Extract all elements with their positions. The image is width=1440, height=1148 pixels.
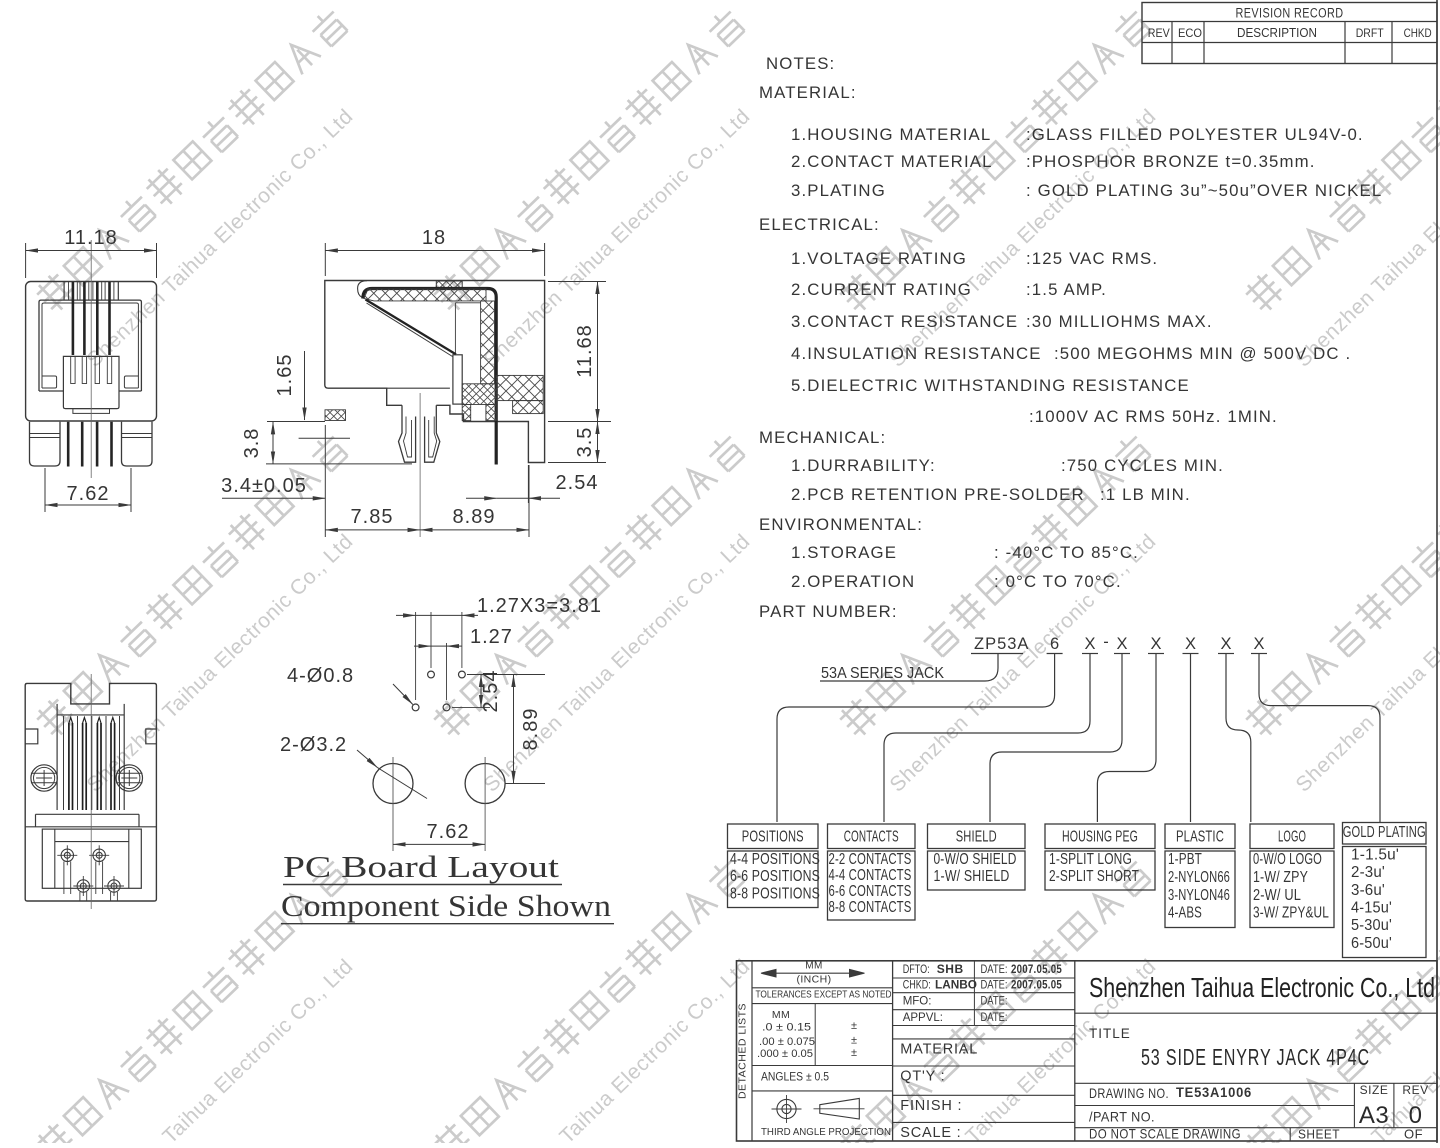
svg-text:: 0°C TO 70°C.: : 0°C TO 70°C. [994, 572, 1122, 591]
svg-text:1-W/ SHIELD: 1-W/ SHIELD [934, 868, 1010, 885]
svg-text:2-NYLON66: 2-NYLON66 [1168, 869, 1230, 886]
svg-text:X: X [1253, 635, 1264, 653]
svg-text:TE53A1006: TE53A1006 [1176, 1085, 1252, 1100]
svg-text:3.5: 3.5 [574, 427, 596, 458]
svg-text:MM: MM [805, 961, 822, 972]
svg-text:6-6 CONTACTS: 6-6 CONTACTS [829, 883, 912, 900]
svg-text:3.PLATING: 3.PLATING [791, 181, 886, 200]
svg-text:X: X [1150, 635, 1161, 653]
svg-text:2-W/ UL: 2-W/ UL [1253, 887, 1301, 904]
svg-text:1.STORAGE: 1.STORAGE [791, 543, 897, 562]
svg-text:REVISION RECORD: REVISION RECORD [1236, 6, 1344, 21]
svg-text:.00 ± 0.075: .00 ± 0.075 [759, 1036, 815, 1048]
svg-text:DO NOT SCALE DRAWING: DO NOT SCALE DRAWING [1089, 1126, 1241, 1142]
svg-text:CONTACTS: CONTACTS [844, 829, 899, 846]
svg-text:DATE:: DATE: [981, 1012, 1008, 1024]
svg-text:.000 ± 0.05: .000 ± 0.05 [757, 1048, 813, 1060]
svg-text:MFO:: MFO: [903, 996, 932, 1008]
svg-text:3-6u': 3-6u' [1351, 882, 1385, 899]
svg-text:TOLERANCES EXCEPT AS NOTED: TOLERANCES EXCEPT AS NOTED [756, 990, 892, 1001]
svg-text:NOTES:: NOTES: [766, 54, 835, 73]
svg-text:GOLD PLATING: GOLD PLATING [1343, 824, 1426, 841]
svg-text:2.OPERATION: 2.OPERATION [791, 572, 915, 591]
svg-text::PHOSPHOR BRONZE t=0.35mm.: :PHOSPHOR BRONZE t=0.35mm. [1026, 152, 1316, 171]
svg-text:REV: REV [1148, 26, 1170, 40]
svg-text:2007.05.05: 2007.05.05 [1011, 962, 1062, 976]
svg-text:6: 6 [1050, 635, 1059, 653]
svg-text:THIRD ANGLE PROJECTION: THIRD ANGLE PROJECTION [761, 1127, 891, 1138]
svg-text:0-W/O LOGO: 0-W/O LOGO [1253, 851, 1322, 868]
svg-text:TITLE: TITLE [1089, 1026, 1131, 1041]
svg-text:6-6 POSITIONS: 6-6 POSITIONS [730, 868, 820, 885]
svg-text:OF: OF [1404, 1127, 1423, 1142]
svg-text::30 MILLIOHMS MAX.: :30 MILLIOHMS MAX. [1026, 312, 1213, 331]
svg-text:1-1.5u': 1-1.5u' [1351, 847, 1399, 864]
svg-text:3-W/ ZPY&UL: 3-W/ ZPY&UL [1253, 905, 1329, 922]
svg-text:POSITIONS: POSITIONS [742, 829, 804, 846]
svg-text:(INCH): (INCH) [796, 974, 831, 986]
svg-text:1.27: 1.27 [470, 626, 513, 648]
svg-text:/PART NO.: /PART NO. [1089, 1109, 1155, 1125]
svg-text:4-4 POSITIONS: 4-4 POSITIONS [730, 851, 820, 868]
svg-text:SHB: SHB [937, 962, 964, 976]
svg-text:8.89: 8.89 [453, 506, 496, 528]
svg-text:3-NYLON46: 3-NYLON46 [1168, 887, 1230, 904]
svg-text:ECO: ECO [1178, 26, 1202, 40]
svg-text:ENVIRONMENTAL:: ENVIRONMENTAL: [759, 515, 923, 534]
svg-text:7.85: 7.85 [351, 506, 394, 528]
svg-text:1-SPLIT LONG: 1-SPLIT LONG [1049, 851, 1132, 868]
svg-text:5.DIELECTRIC WITHSTANDING RE: 5.DIELECTRIC WITHSTANDING RESISTANCE [791, 376, 1190, 395]
svg-text:LANBO: LANBO [935, 978, 977, 992]
svg-text:X: X [1084, 635, 1095, 653]
svg-text:3.4±0.05: 3.4±0.05 [221, 475, 307, 497]
svg-text:SHEET: SHEET [1298, 1127, 1340, 1142]
svg-text:DESCRIPTION: DESCRIPTION [1237, 26, 1317, 40]
svg-text:.0 ± 0.15: .0 ± 0.15 [762, 1021, 811, 1033]
svg-text:A3: A3 [1359, 1102, 1389, 1129]
svg-text:2-3u': 2-3u' [1351, 864, 1385, 881]
svg-text:8.89: 8.89 [520, 708, 542, 751]
svg-text::125 VAC RMS.: :125 VAC RMS. [1026, 249, 1158, 268]
svg-text:ELECTRICAL:: ELECTRICAL: [759, 215, 880, 234]
svg-text:CHKD:: CHKD: [903, 980, 931, 992]
svg-text:4-ABS: 4-ABS [1168, 905, 1202, 922]
svg-text:FINISH :: FINISH : [900, 1098, 962, 1114]
svg-text:8-8 POSITIONS: 8-8 POSITIONS [730, 885, 820, 902]
svg-text:3.8: 3.8 [241, 428, 263, 459]
svg-text:2007.05.05: 2007.05.05 [1011, 978, 1062, 992]
svg-text:HOUSING PEG: HOUSING PEG [1062, 829, 1138, 846]
svg-text:53 SIDE ENYRY JACK 4P4C: 53 SIDE ENYRY JACK 4P4C [1141, 1044, 1370, 1070]
svg-text:MECHANICAL:: MECHANICAL: [759, 428, 886, 447]
svg-text:2.PCB RETENTION PRE-SOLDER: 2.PCB RETENTION PRE-SOLDER [791, 485, 1085, 504]
svg-text:1.27X3=3.81: 1.27X3=3.81 [477, 595, 602, 617]
svg-text::: : [962, 1041, 966, 1057]
svg-text::GLASS FILLED POLYESTER UL9: :GLASS FILLED POLYESTER UL94V-0. [1026, 125, 1364, 144]
svg-text:DRAWING NO.: DRAWING NO. [1089, 1085, 1169, 1101]
svg-text:ZP53A: ZP53A [974, 635, 1029, 653]
svg-text:1-W/ ZPY: 1-W/ ZPY [1253, 869, 1308, 886]
svg-text:11.18: 11.18 [64, 227, 118, 249]
svg-text:DATE:: DATE: [981, 964, 1008, 976]
svg-text:PLASTIC: PLASTIC [1176, 829, 1224, 846]
svg-text:DFTO:: DFTO: [903, 964, 930, 976]
svg-text:8-8 CONTACTS: 8-8 CONTACTS [829, 899, 912, 916]
svg-text:MM: MM [772, 1009, 790, 1021]
svg-text:: GOLD PLATING 3u”~50u”OVER: : GOLD PLATING 3u”~50u”OVER NICKEL [1026, 181, 1382, 200]
svg-text:4-15u': 4-15u' [1351, 900, 1392, 917]
svg-text:1.VOLTAGE RATING: 1.VOLTAGE RATING [791, 249, 967, 268]
svg-text:2.CURRENT RATING: 2.CURRENT RATING [791, 280, 972, 299]
svg-text:7.62: 7.62 [67, 483, 110, 505]
svg-text:SCALE :: SCALE : [900, 1125, 961, 1141]
svg-text:PART NUMBER:: PART NUMBER: [759, 602, 898, 621]
svg-text:SHIELD: SHIELD [956, 829, 997, 846]
svg-text:QT'Y :: QT'Y : [900, 1069, 945, 1085]
svg-text:Component Side Shown: Component Side Shown [281, 888, 612, 923]
svg-text:2.CONTACT MATERIAL: 2.CONTACT MATERIAL [791, 152, 993, 171]
svg-text::1 LB MIN.: :1 LB MIN. [1100, 485, 1191, 504]
svg-text:18: 18 [422, 227, 446, 249]
svg-text:2-Ø3.2: 2-Ø3.2 [280, 734, 347, 756]
svg-text:53A SERIES JACK: 53A SERIES JACK [821, 665, 945, 682]
svg-text:±: ± [851, 1035, 857, 1047]
svg-text:4-Ø0.8: 4-Ø0.8 [287, 665, 354, 687]
svg-text::500 MEGOHMS MIN @ 500V D: :500 MEGOHMS MIN @ 500V DC . [1054, 344, 1351, 363]
svg-text:±: ± [851, 1047, 857, 1059]
svg-text:PC Board Layout: PC Board Layout [283, 849, 559, 884]
svg-text:ANGLES ± 0.5: ANGLES ± 0.5 [761, 1072, 829, 1084]
svg-text:1.DURRABILITY:: 1.DURRABILITY: [791, 456, 936, 475]
svg-text:4.INSULATION RESISTANCE: 4.INSULATION RESISTANCE [791, 344, 1042, 363]
svg-text:±: ± [851, 1020, 857, 1032]
svg-text:2-SPLIT SHORT: 2-SPLIT SHORT [1049, 868, 1139, 885]
svg-text:0-W/O SHIELD: 0-W/O SHIELD [934, 851, 1017, 868]
svg-text:REV: REV [1402, 1083, 1428, 1097]
svg-text:11.68: 11.68 [574, 324, 596, 378]
svg-text:6-50u': 6-50u' [1351, 935, 1392, 952]
svg-text:DRFT: DRFT [1356, 26, 1385, 40]
svg-text:4-4 CONTACTS: 4-4 CONTACTS [829, 867, 912, 884]
svg-text:7.62: 7.62 [427, 821, 470, 843]
svg-text::1.5 AMP.: :1.5 AMP. [1026, 280, 1107, 299]
svg-text:X: X [1185, 635, 1196, 653]
svg-text:5-30u': 5-30u' [1351, 917, 1392, 934]
svg-text:X: X [1116, 635, 1127, 653]
svg-text:1.65: 1.65 [274, 354, 296, 397]
svg-text:DETACHED LISTS: DETACHED LISTS [737, 1003, 749, 1099]
svg-text:1.HOUSING MATERIAL: 1.HOUSING MATERIAL [791, 125, 991, 144]
svg-text:X: X [1220, 635, 1231, 653]
svg-text:2-2 CONTACTS: 2-2 CONTACTS [829, 851, 912, 868]
svg-text:MATERIAL:: MATERIAL: [759, 83, 857, 102]
svg-text:DATE:: DATE: [981, 980, 1008, 992]
svg-text::750 CYCLES MIN.: :750 CYCLES MIN. [1061, 456, 1224, 475]
svg-text:SIZE: SIZE [1360, 1083, 1389, 1097]
svg-text:3.CONTACT RESISTANCE: 3.CONTACT RESISTANCE [791, 312, 1018, 331]
svg-text:CHKD: CHKD [1404, 26, 1432, 40]
svg-text:: -40°C TO 85°C.: : -40°C TO 85°C. [994, 543, 1139, 562]
svg-text:2.54: 2.54 [480, 670, 502, 713]
svg-text:LOGO: LOGO [1278, 829, 1306, 846]
svg-text:1-PBT: 1-PBT [1168, 851, 1202, 868]
svg-text::1000V AC RMS 50Hz. 1MIN.: :1000V AC RMS 50Hz. 1MIN. [1029, 407, 1278, 426]
svg-text:DATE:: DATE: [981, 996, 1008, 1008]
svg-text:-: - [1103, 633, 1109, 651]
svg-text:MATERIAL: MATERIAL [900, 1041, 978, 1057]
svg-text:2.54: 2.54 [556, 472, 599, 494]
svg-text:0: 0 [1409, 1102, 1423, 1129]
svg-text:Shenzhen Taihua Electronic Co.: Shenzhen Taihua Electronic Co., Ltd [1089, 972, 1435, 1003]
svg-text:APPVL:: APPVL: [903, 1012, 943, 1024]
